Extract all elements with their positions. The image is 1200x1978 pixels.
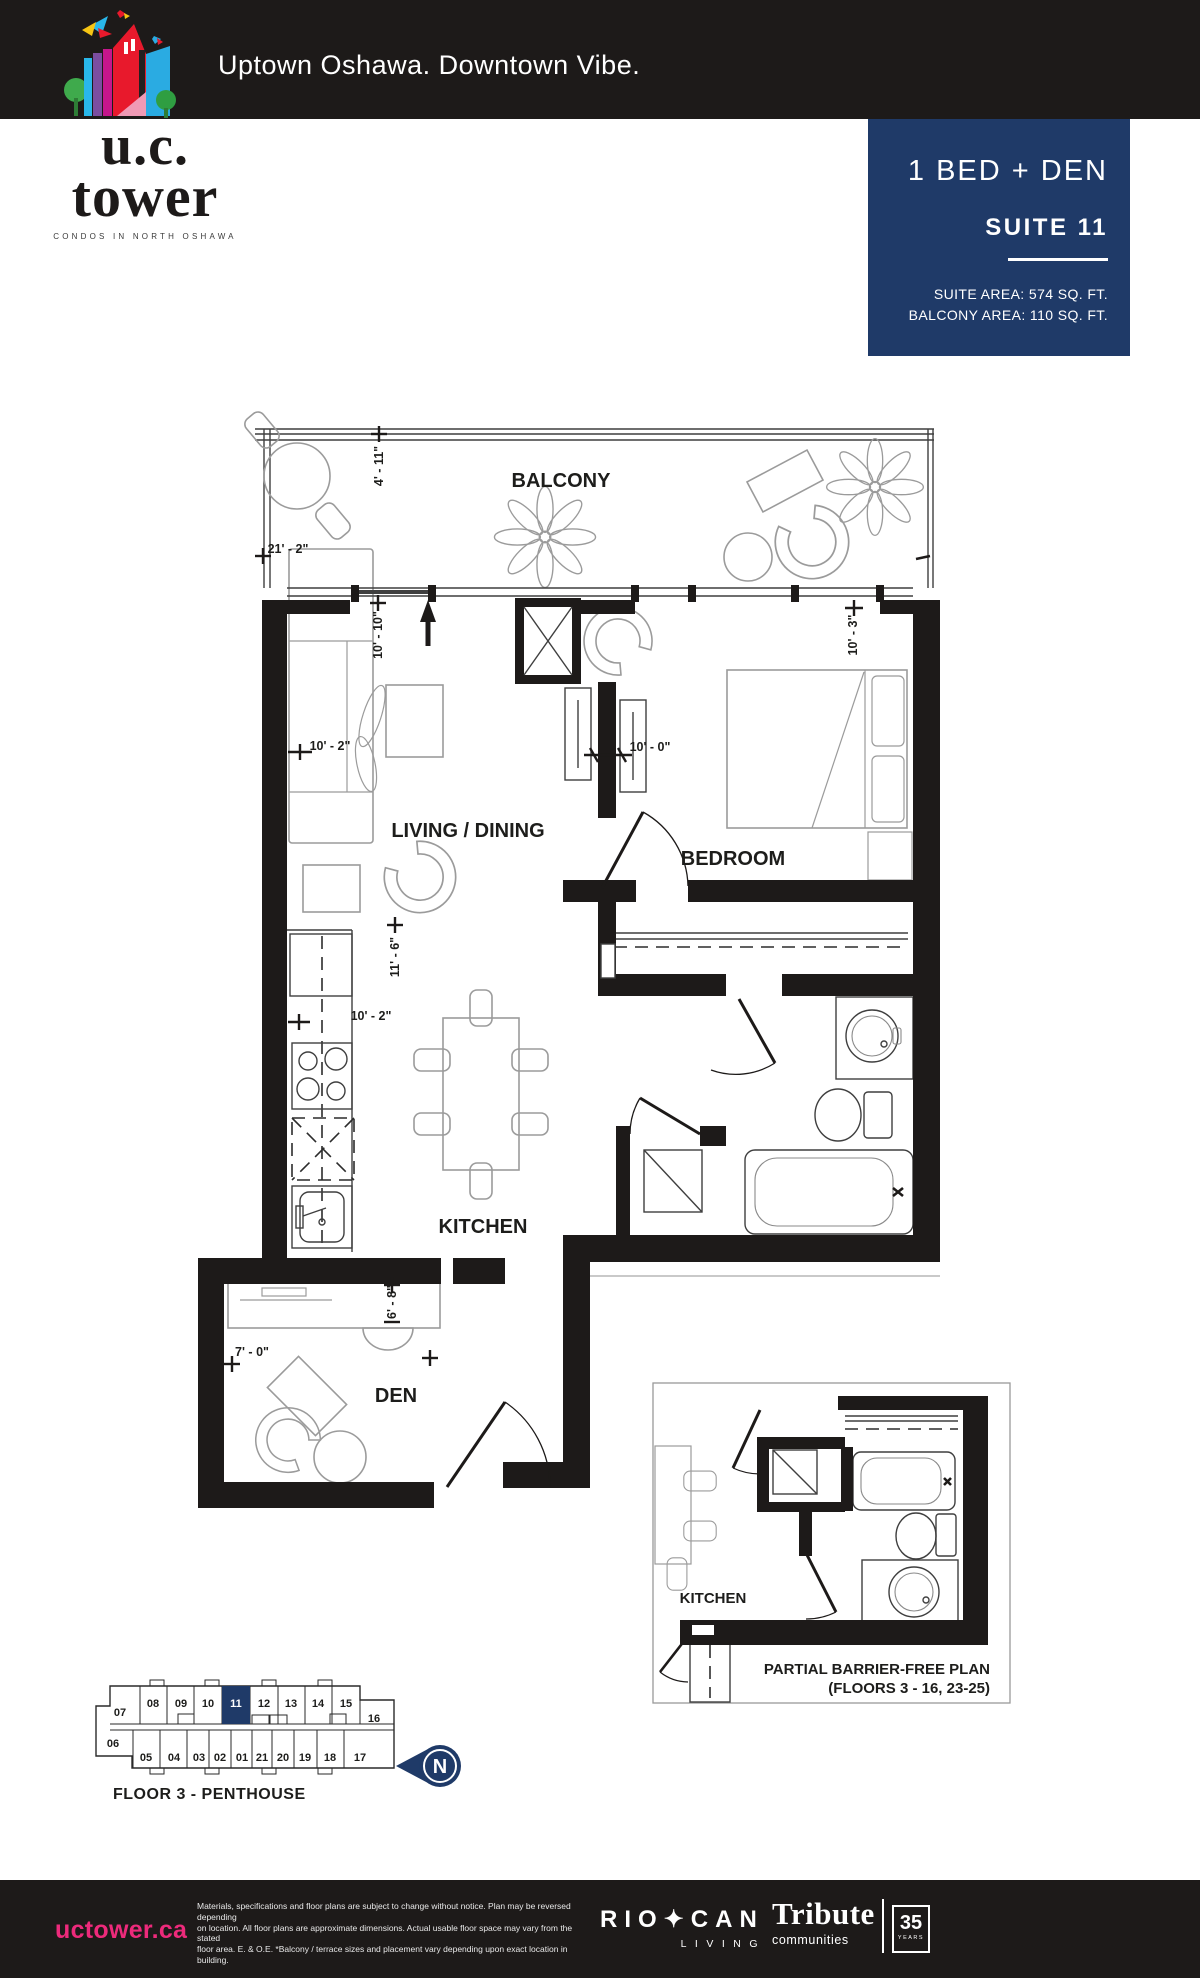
svg-text:02: 02 (214, 1752, 226, 1764)
kitchen-fixtures (287, 930, 354, 1252)
partial-kitchen-label: KITCHEN (680, 1590, 747, 1607)
key-plan: 07 08 09 10 11 12 13 14 15 16 06 05 04 0… (96, 1680, 461, 1803)
dining-set (414, 990, 548, 1199)
disclaimer-line: on location. All floor plans are approxi… (197, 1923, 582, 1945)
dim-kitchen-width: 10' - 2" (351, 1009, 392, 1023)
floorplan-sheet: Uptown Oshawa. Downtown Vibe. u.c. tower… (0, 0, 1200, 1978)
dim-den-width: 7' - 0" (235, 1345, 269, 1359)
disclaimer-line: Materials, specifications and floor plan… (197, 1901, 582, 1923)
bathroom-fixtures (644, 997, 913, 1234)
svg-text:17: 17 (354, 1752, 366, 1764)
years-number: 35 (894, 1912, 928, 1935)
label-living-dining: LIVING / DINING (391, 820, 544, 842)
balcony-furniture (242, 409, 923, 592)
partial-plan: KITCHEN PARTIAL BARRIER-FREE PLAN (FLOOR… (653, 1383, 1010, 1703)
disclaimer: Materials, specifications and floor plan… (197, 1901, 582, 1966)
svg-text:08: 08 (147, 1698, 159, 1710)
dim-hall-width: 10' - 0" (630, 740, 671, 754)
svg-text:03: 03 (193, 1752, 205, 1764)
svg-text:18: 18 (324, 1752, 336, 1764)
tribute-35-years-badge: 35 YEARS (892, 1905, 930, 1953)
tribute-communities-label: communities (772, 1933, 875, 1947)
years-label: YEARS (894, 1935, 928, 1941)
label-balcony: BALCONY (512, 470, 612, 492)
footer-divider (882, 1899, 884, 1953)
keyplan-unit: 07 (114, 1707, 126, 1719)
label-bedroom: BEDROOM (681, 848, 785, 870)
svg-text:05: 05 (140, 1752, 152, 1764)
svg-text:19: 19 (299, 1752, 311, 1764)
svg-text:09: 09 (175, 1698, 187, 1710)
svg-text:10: 10 (202, 1698, 214, 1710)
dim-balcony-depth: 4' - 11" (372, 446, 386, 486)
north-label: N (433, 1756, 447, 1778)
dim-bedroom-width: 10' - 3" (846, 615, 860, 656)
window-wall (287, 585, 913, 602)
svg-text:16: 16 (368, 1713, 380, 1725)
partial-title-line1: PARTIAL BARRIER-FREE PLAN (764, 1661, 990, 1678)
riocan-wordmark: RIO✦CAN (600, 1905, 770, 1934)
dim-living-depth: 10' - 10" (371, 611, 385, 659)
dim-kitchen-length: 11' - 6" (388, 937, 402, 977)
tribute-logo: Tribute communities (772, 1896, 875, 1947)
keyplan-unit-11: 11 (230, 1698, 242, 1710)
dim-balcony-width: 21' - 2" (268, 542, 309, 556)
doors (420, 600, 775, 1487)
tribute-wordmark: Tribute (772, 1896, 875, 1932)
website-link: uctower.ca (55, 1916, 187, 1945)
north-arrow-icon: N (396, 1745, 461, 1787)
den-furniture (228, 1282, 440, 1483)
partial-title-line2: (FLOORS 3 - 16, 23-25) (828, 1680, 990, 1697)
riocan-living-label: LIVING (600, 1938, 770, 1950)
svg-text:01: 01 (236, 1752, 248, 1764)
svg-text:12: 12 (258, 1698, 270, 1710)
svg-text:04: 04 (168, 1752, 181, 1764)
keyplan-floor-label: FLOOR 3 - PENTHOUSE (113, 1786, 306, 1803)
svg-text:14: 14 (312, 1698, 325, 1710)
dim-den-depth: 6' - 8" (385, 1285, 399, 1319)
dim-living-width: 10' - 2" (310, 739, 351, 753)
svg-text:15: 15 (340, 1698, 352, 1710)
balcony-railing (255, 429, 934, 588)
svg-text:20: 20 (277, 1752, 289, 1764)
label-kitchen: KITCHEN (439, 1216, 528, 1238)
disclaimer-line: floor area. E. & O.E. *Balcony / terrace… (197, 1944, 582, 1966)
walls (198, 598, 940, 1508)
svg-text:13: 13 (285, 1698, 297, 1710)
svg-text:21: 21 (256, 1752, 268, 1764)
svg-text:06: 06 (107, 1738, 119, 1750)
riocan-living-logo: RIO✦CAN LIVING (600, 1905, 770, 1950)
floorplan-drawing: 4' - 11" 21' - 2" 10' - 10" 10' - 2" 10'… (0, 0, 1200, 1978)
label-den: DEN (375, 1385, 417, 1407)
dimension-labels: 4' - 11" 21' - 2" 10' - 10" 10' - 2" 10'… (235, 446, 860, 1359)
